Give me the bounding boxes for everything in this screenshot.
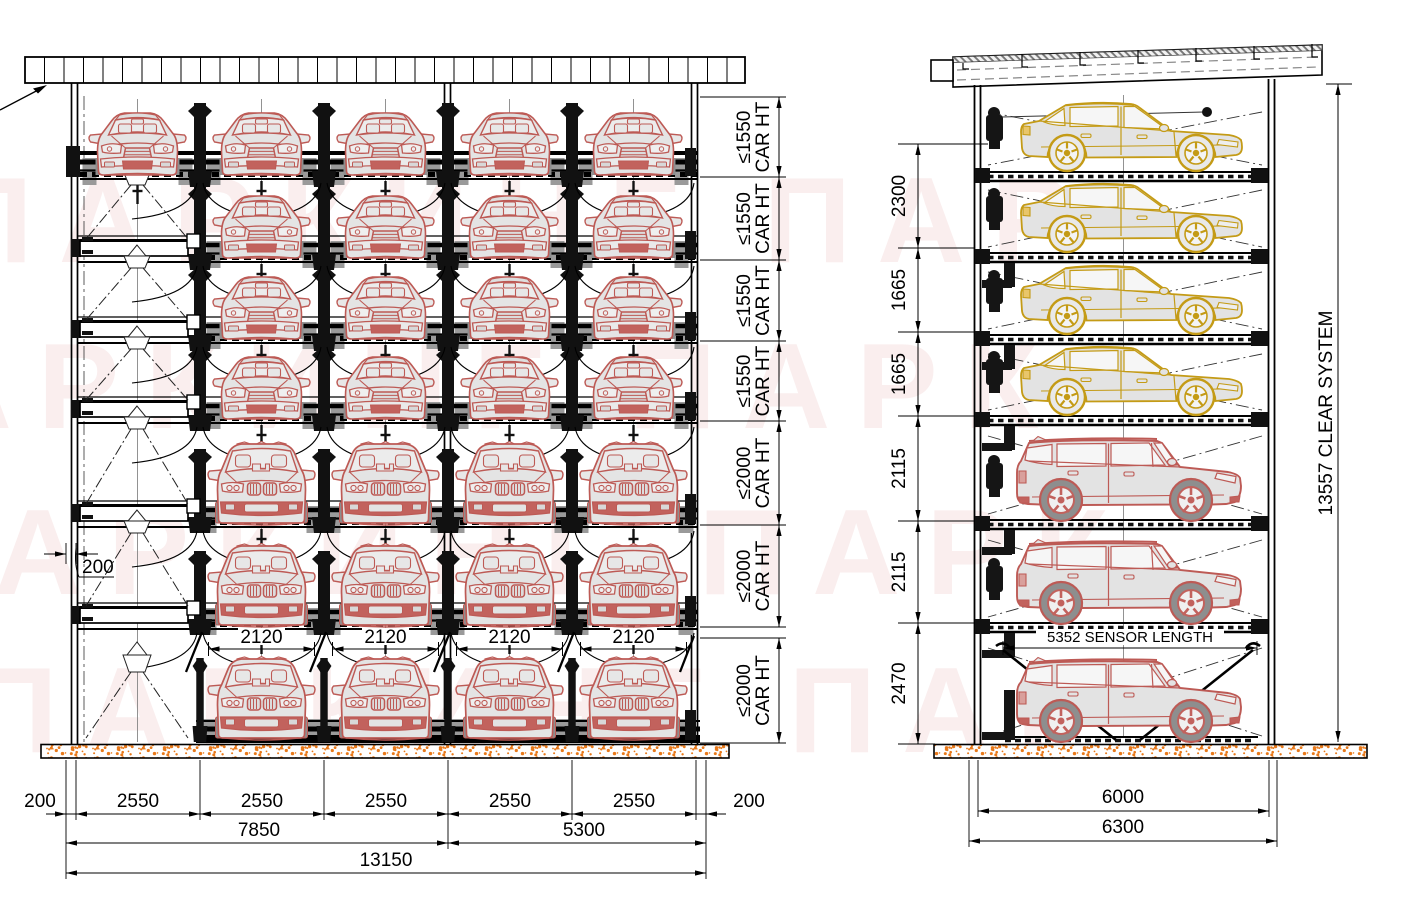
svg-text:1665: 1665 <box>889 353 910 395</box>
svg-text:≤1550: ≤1550 <box>734 192 755 245</box>
svg-text:2120: 2120 <box>364 627 406 648</box>
svg-text:6000: 6000 <box>1102 787 1144 808</box>
svg-text:≤1550: ≤1550 <box>734 355 755 408</box>
svg-text:CAR HT: CAR HT <box>753 265 774 336</box>
svg-text:2300: 2300 <box>889 175 910 217</box>
svg-text:≤1550: ≤1550 <box>734 274 755 327</box>
svg-text:2115: 2115 <box>889 448 910 489</box>
svg-text:2550: 2550 <box>117 791 159 812</box>
svg-text:2550: 2550 <box>613 791 655 812</box>
svg-text:CAR HT: CAR HT <box>753 345 774 416</box>
svg-text:CAR HT: CAR HT <box>753 101 774 172</box>
svg-text:2550: 2550 <box>365 791 407 812</box>
svg-text:2115: 2115 <box>889 552 910 593</box>
svg-text:13150: 13150 <box>360 850 413 871</box>
svg-text:200: 200 <box>24 791 56 812</box>
svg-text:CAR HT: CAR HT <box>753 183 774 254</box>
svg-text:2120: 2120 <box>612 627 654 648</box>
svg-text:≤2000: ≤2000 <box>734 447 755 500</box>
svg-text:CAR HT: CAR HT <box>753 540 774 611</box>
svg-text:2550: 2550 <box>489 791 531 812</box>
svg-text:≤1550: ≤1550 <box>734 111 755 164</box>
svg-text:13557 CLEAR SYSTEM: 13557 CLEAR SYSTEM <box>1316 311 1337 516</box>
svg-text:1665: 1665 <box>889 269 910 311</box>
svg-text:≤2000: ≤2000 <box>734 550 755 603</box>
svg-text:200: 200 <box>733 791 765 812</box>
svg-text:2120: 2120 <box>240 627 282 648</box>
svg-text:2550: 2550 <box>241 791 283 812</box>
svg-text:5352 SENSOR LENGTH: 5352 SENSOR LENGTH <box>1047 629 1213 646</box>
svg-text:≤2000: ≤2000 <box>734 664 755 717</box>
svg-text:2470: 2470 <box>889 662 910 704</box>
svg-text:CAR HT: CAR HT <box>753 437 774 508</box>
svg-text:200: 200 <box>82 557 114 578</box>
svg-text:6300: 6300 <box>1102 817 1144 838</box>
svg-text:CAR HT: CAR HT <box>753 655 774 726</box>
svg-text:5300: 5300 <box>563 820 605 841</box>
svg-text:2120: 2120 <box>488 627 530 648</box>
svg-text:7850: 7850 <box>238 820 280 841</box>
